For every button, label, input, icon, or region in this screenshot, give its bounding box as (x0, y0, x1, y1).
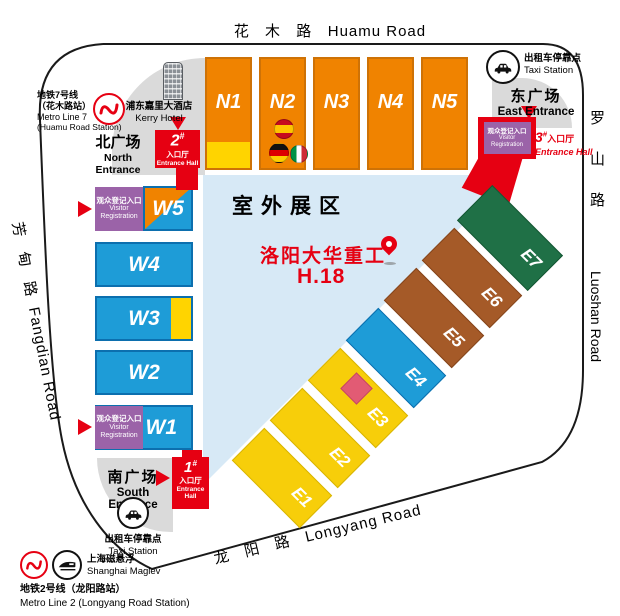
taxi-icon-south (117, 497, 149, 529)
hall-W3: W3 (95, 296, 193, 341)
metro-line2-label: 地铁2号线（龙阳路站） Metro Line 2 (Longyang Road … (20, 583, 190, 610)
red-arrow-w1-icon (78, 419, 92, 435)
hall-E5-label: E5 (439, 323, 468, 352)
hall-W3-label: W3 (128, 307, 160, 331)
hall-W5-label: W5 (152, 197, 184, 221)
hall-N1: N1 (205, 57, 252, 170)
north-entrance-label: 北广场 North Entrance (86, 131, 150, 176)
hall-N5: N5 (421, 57, 468, 170)
booth-number: H.18 (297, 265, 345, 289)
maglev-train-icon (52, 550, 82, 580)
kerry-hotel-building-icon (163, 62, 183, 100)
taxi-label-east: 出租车停靠点 Taxi Station (524, 53, 581, 78)
entrance-hall-1-box: 1# 入口厅 Entrance Hall (172, 457, 209, 509)
east-entrance-label: 东广场 East Entrance (494, 85, 578, 118)
visitor-registration-w5: 观众登记入口 Visitor Registration (95, 187, 143, 231)
hall-N3: N3 (313, 57, 360, 170)
taxi-icon-east (486, 50, 520, 84)
entrance-hall-3-box: 观众登记入口 Visitor Registration (478, 117, 536, 159)
metro-logo-icon-bottom (20, 551, 48, 579)
hall-W3-yellow-strip (171, 298, 191, 339)
germany-flag-icon (269, 143, 289, 163)
hall-E6-label: E6 (477, 283, 506, 312)
hall-E2-label: E2 (325, 443, 354, 472)
italy-flag-icon (290, 145, 308, 163)
hall-N1-label: N1 (216, 91, 242, 114)
visitor-registration-w1: 观众登记入口 Visitor Registration (95, 406, 143, 449)
booth-exhibitor-name: 洛阳大华重工 (260, 241, 386, 268)
hall-N4-label: N4 (378, 91, 404, 114)
hall-W4-label: W4 (128, 253, 160, 277)
hall-N4: N4 (367, 57, 414, 170)
hall-N2-label: N2 (270, 91, 296, 114)
hall-W1-label: W1 (146, 416, 178, 440)
hall-W2-label: W2 (128, 361, 160, 385)
hall-N1-yellow-strip (207, 142, 250, 168)
road-label-huamu: 花 木 路 Huamu Road (0, 20, 620, 41)
kerry-hotel-label: 浦东嘉里大酒店 Kerry Hotel (120, 101, 198, 125)
hall-W5: W5 (143, 186, 193, 231)
hall-E3-label: E3 (363, 403, 392, 432)
hall-E4-label: E4 (401, 363, 430, 392)
visitor-registration-east: 观众登记入口 Visitor Registration (484, 122, 531, 154)
hall-N5-label: N5 (432, 91, 458, 114)
red-arrow-w5-icon (78, 201, 92, 217)
spain-flag-icon (274, 119, 294, 139)
hall-N2: N2 (259, 57, 306, 170)
entrance-hall-3-label: 3#入口厅 Entrance Hall (535, 129, 593, 157)
outdoor-area-label: 室外展区 (232, 190, 348, 220)
entrance-hall-2-box: 2# 入口厅 Entrance Hall (155, 130, 200, 168)
hall-W2: W2 (95, 350, 193, 395)
hall-N3-label: N3 (324, 91, 350, 114)
hall-E1-label: E1 (287, 483, 316, 512)
hall-W4: W4 (95, 242, 193, 287)
maglev-label: 上海磁悬浮 Shanghai Maglev (87, 554, 160, 579)
hall-E7-label: E7 (517, 245, 546, 274)
expo-map: 花 木 路 Huamu Road 罗山路 Luoshan Road 芳 甸 路 … (0, 0, 620, 616)
